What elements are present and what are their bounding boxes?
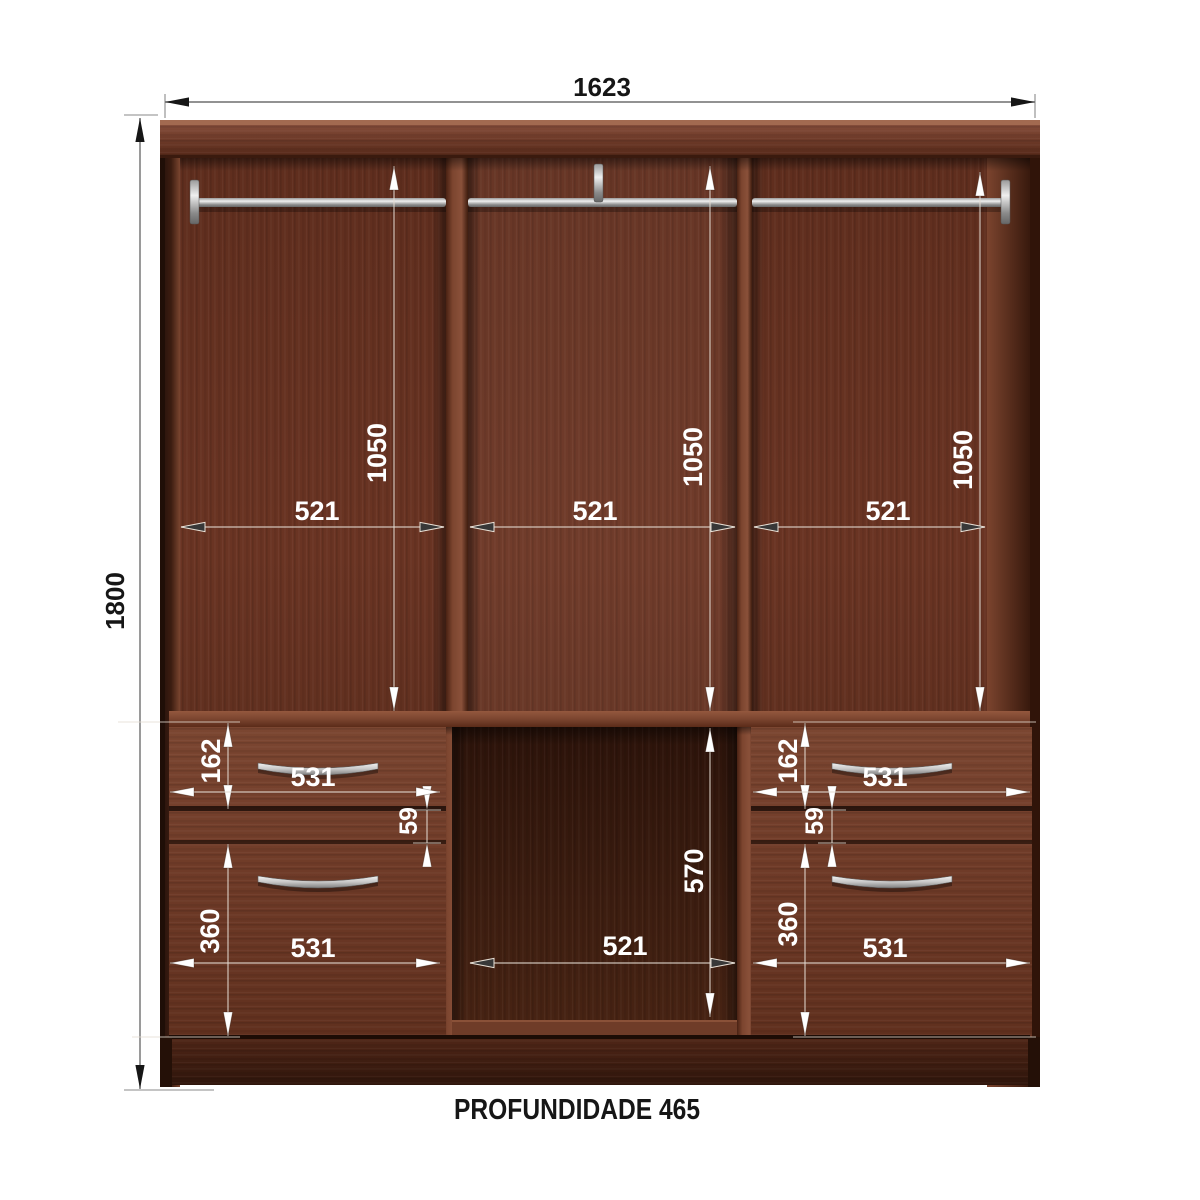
top-panel-lip [160,120,1040,125]
top-panel-edge [160,155,1040,158]
dim-label: 531 [290,933,335,963]
partition-right-inner-shadow [752,158,764,718]
rod-bracket-right-icon [1001,180,1010,224]
dim-label: 360 [195,908,225,953]
dim-label: 531 [862,762,907,792]
open-top-shadow [452,727,737,745]
partition-left-shadow [432,158,446,718]
wardrobe-dimension-diagram: 1623180010501050105052152152116216259593… [0,0,1200,1200]
dim-label: 162 [196,738,226,783]
dim-label: 570 [679,848,709,893]
dim-label: 521 [572,496,617,526]
top-inner-shadow [180,158,1030,171]
dim-label: 521 [865,496,910,526]
dim-label: 1050 [678,427,708,487]
left-outer-edge [160,158,165,1087]
hanger-rod-left-section [194,198,446,207]
dim-label: 531 [862,933,907,963]
open-base-front-edge [452,1020,737,1037]
plinth-foot-right [1028,1037,1040,1087]
top-panel-grain [160,120,1040,158]
partition-right [737,158,752,718]
dim-label: 162 [773,738,803,783]
hanger-rod-right-section [752,198,1006,207]
dim-label: 1050 [948,430,978,490]
dim-label: 59 [801,807,829,835]
rod-shadow-middle [468,207,737,212]
open-left-shadow [452,727,466,1020]
diagram-canvas: 1623180010501050105052152152116216259593… [0,0,1200,1200]
partition-left-inner-shadow [468,158,480,718]
dim-label: 59 [395,807,423,835]
rod-bracket-left-icon [190,180,199,224]
depth-label: PROFUNDIDADE 465 [454,1094,700,1126]
partition-left [446,158,468,718]
dim-label: 1800 [100,572,130,630]
drawer-seam [169,840,446,844]
dim-label: 521 [602,931,647,961]
open-base-highlight [452,1020,737,1022]
rod-support-middle-icon [594,164,603,202]
drawer-seam [751,806,1032,811]
plinth-grain [172,1039,1030,1085]
open-right-shadow [723,727,737,1020]
dim-label: 1623 [573,72,631,102]
rod-shadow-right [752,207,1006,212]
dim-label: 1050 [362,423,392,483]
plinth-foot-left [160,1037,172,1087]
partition-right-shadow [720,158,737,718]
dim-label: 360 [773,901,803,946]
dim-label: 531 [290,762,335,792]
rod-shadow-left [194,207,446,212]
dim-label: 521 [294,496,339,526]
shelf [169,711,1030,727]
drawer-seam [751,840,1032,844]
